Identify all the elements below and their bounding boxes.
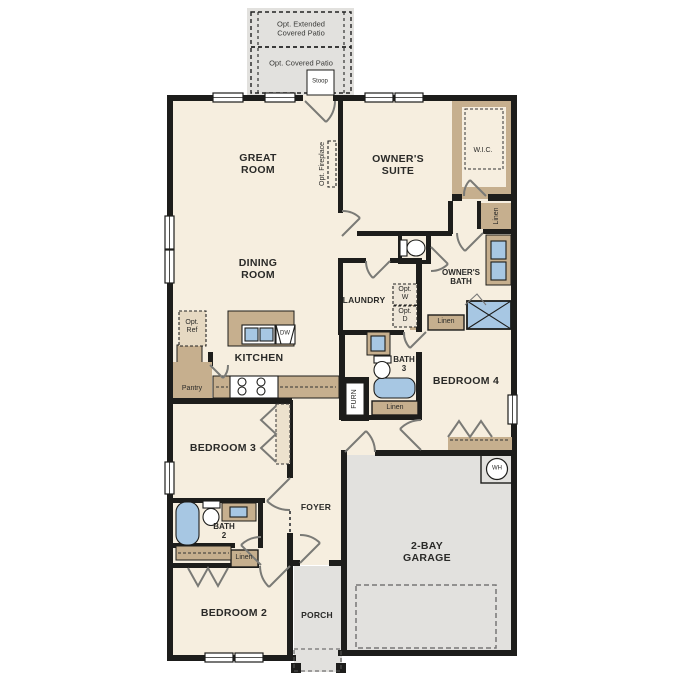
bedroom3-closet-shelf — [276, 404, 290, 464]
bath2-sink — [230, 507, 247, 517]
stove — [230, 376, 278, 398]
owners-toilet — [400, 240, 425, 256]
owners-bath-sink-1 — [491, 241, 506, 259]
wic-closet — [452, 101, 512, 199]
stoop-pad — [307, 70, 334, 95]
bath3-tub — [374, 378, 415, 398]
pantry-floor — [173, 362, 212, 398]
floor-plan-drawing — [0, 0, 687, 687]
bath3-toilet — [374, 356, 391, 379]
linen-cabinet-2 — [428, 315, 464, 330]
linen-cabinet-3 — [372, 401, 418, 415]
owners-bath-sink-2 — [491, 262, 506, 280]
opt-washer — [393, 284, 417, 305]
floor-plan: Opt. Extended Covered Patio Opt. Covered… — [0, 0, 687, 687]
porch-slab — [294, 566, 342, 672]
bath2-toilet — [203, 501, 220, 526]
bath3-sink — [371, 336, 385, 351]
bath2-tub — [176, 502, 199, 545]
furnace — [346, 383, 364, 415]
bedroom4-closet-shelf — [448, 437, 512, 450]
linen-cabinet-1 — [481, 203, 511, 229]
opt-dryer — [393, 306, 417, 327]
opt-refrigerator — [179, 311, 206, 346]
